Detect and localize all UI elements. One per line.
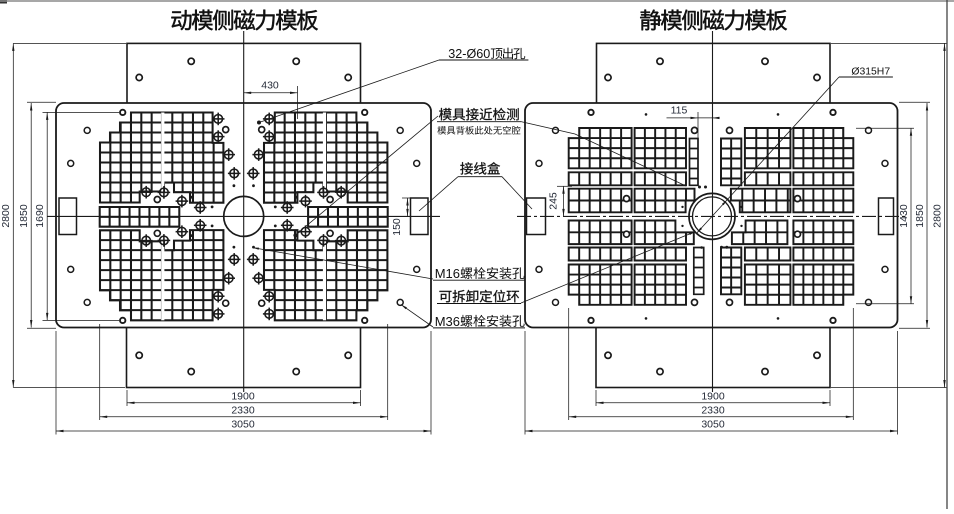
svg-text:3050: 3050 bbox=[231, 418, 255, 430]
svg-text:1430: 1430 bbox=[898, 204, 910, 228]
svg-text:2800: 2800 bbox=[0, 204, 12, 228]
svg-text:M36: M36 bbox=[435, 314, 460, 329]
svg-text:2330: 2330 bbox=[701, 404, 725, 416]
svg-text:1850: 1850 bbox=[914, 204, 926, 228]
svg-text:1850: 1850 bbox=[18, 204, 30, 228]
svg-text:115: 115 bbox=[671, 105, 688, 117]
svg-text:2800: 2800 bbox=[932, 204, 944, 228]
svg-text:1900: 1900 bbox=[231, 390, 255, 402]
svg-text:Ø315H7: Ø315H7 bbox=[851, 67, 890, 78]
svg-text:430: 430 bbox=[261, 80, 279, 92]
svg-text:32-Ø60: 32-Ø60 bbox=[448, 47, 490, 61]
svg-text:M16: M16 bbox=[435, 266, 460, 281]
svg-text:150: 150 bbox=[391, 218, 403, 236]
svg-text:1900: 1900 bbox=[701, 390, 725, 402]
svg-text:2330: 2330 bbox=[231, 404, 255, 416]
svg-text:245: 245 bbox=[548, 192, 560, 210]
svg-text:1690: 1690 bbox=[34, 204, 46, 228]
svg-text:3050: 3050 bbox=[701, 418, 725, 430]
